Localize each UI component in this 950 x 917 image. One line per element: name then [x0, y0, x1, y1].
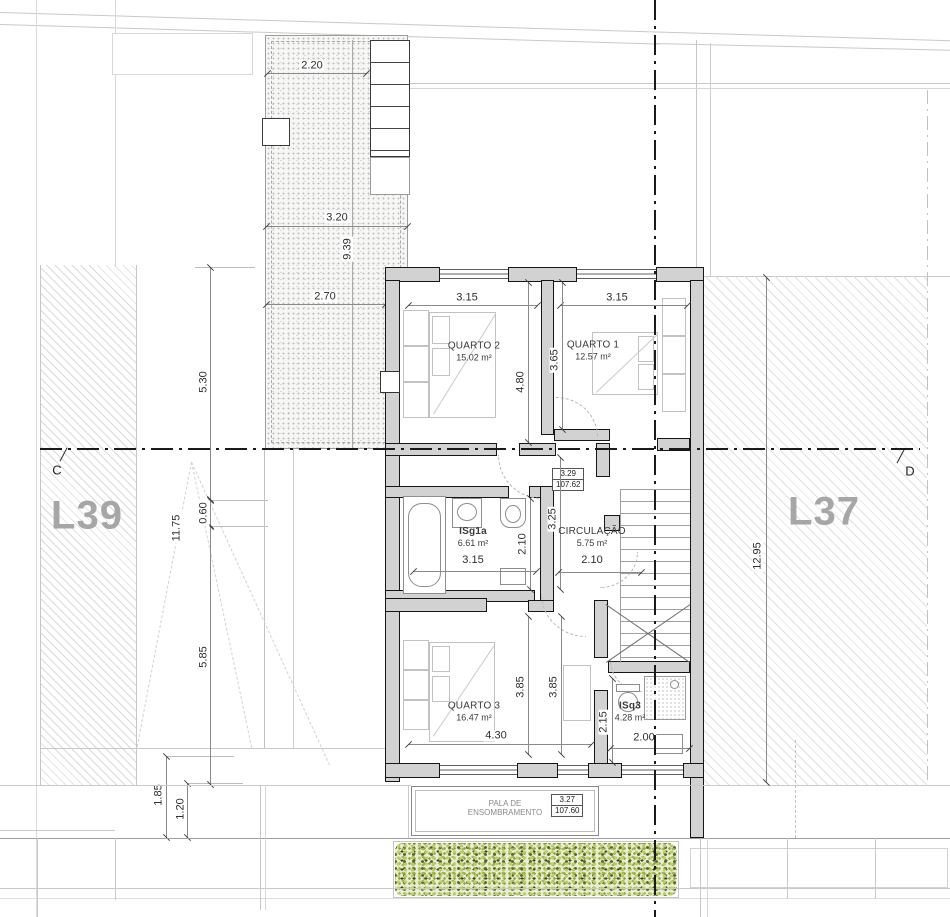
room-name: QUARTO 3: [448, 700, 500, 713]
room-name: QUARTO 1: [567, 339, 619, 352]
pillow: [432, 676, 450, 702]
wardrobe: [662, 374, 686, 412]
patio-box: [262, 118, 290, 146]
line: [0, 898, 950, 899]
line: [683, 763, 704, 778]
lot-label-l39: L39: [51, 494, 123, 539]
window: [622, 765, 683, 778]
shower-drain: [670, 680, 679, 689]
line: [594, 600, 608, 658]
wall-left: [385, 280, 400, 782]
dim-q3-d1: 3.85: [516, 674, 527, 699]
wardrobe: [403, 346, 429, 382]
wardrobe: [403, 670, 429, 700]
room-width: 2.10: [558, 553, 626, 567]
line: [115, 838, 116, 900]
level-marker-pala: 3.27 107.60: [551, 794, 583, 817]
line: [40, 748, 388, 749]
line: [264, 449, 265, 748]
room-name: ISq3: [615, 700, 646, 713]
line: [37, 838, 38, 917]
room-name: ISg1a: [458, 525, 489, 538]
room-label-circulacao: CIRCULAÇÃO 5.75 m² 2.10: [558, 525, 626, 567]
dim-line: [766, 277, 767, 783]
dim-line: [266, 226, 408, 227]
wardrobe: [403, 700, 429, 730]
line: [707, 838, 708, 917]
dim-isq3-w: 2.00: [631, 733, 656, 744]
wardrobe: [662, 336, 686, 374]
line: [210, 500, 268, 501]
line: [385, 443, 497, 456]
line: [700, 838, 701, 917]
line: [210, 500, 211, 526]
room-name: CIRCULAÇÃO: [558, 525, 626, 538]
level-marker-circ: 3.29 107.62: [552, 468, 584, 491]
room-width: 3.15: [458, 553, 489, 567]
wardrobe: [403, 382, 429, 418]
dim-left-diag: 11.75: [172, 513, 183, 544]
line: [210, 526, 211, 785]
dim-hall-d: 3.25: [548, 506, 559, 531]
dim-line: [610, 748, 690, 749]
line: [265, 785, 266, 910]
wall-right: [690, 280, 704, 838]
line: [599, 785, 950, 786]
line: [408, 785, 409, 838]
neighbor-footprint: [112, 33, 253, 75]
window: [577, 269, 656, 282]
toilet-tank: [616, 684, 640, 692]
room-area: 16.47 m²: [448, 713, 500, 725]
room-label-isq3: ISq3 4.28 m²: [615, 700, 646, 725]
sink: [655, 734, 683, 754]
window: [558, 765, 588, 778]
room-label-quarto1: QUARTO 1 12.57 m²: [567, 339, 619, 364]
line: [696, 40, 697, 277]
dim-line: [560, 305, 688, 306]
line: [260, 785, 261, 910]
section-line-cd: [40, 448, 920, 450]
line: [166, 756, 167, 838]
wardrobe: [403, 640, 429, 670]
dim-left-c: 5.85: [199, 644, 210, 669]
level-height: 3.29: [553, 469, 583, 480]
dim-line: [612, 678, 613, 763]
dim-line: [558, 572, 642, 573]
level-elevation: 107.60: [552, 806, 582, 816]
line: [210, 526, 268, 527]
room-label-quarto2: QUARTO 2 15.02 m²: [448, 340, 500, 365]
dim-bath-d: 2.10: [518, 531, 529, 556]
room-area: 5.75 m²: [558, 538, 626, 550]
exterior-stair-landing: [370, 157, 410, 195]
line: [210, 267, 211, 500]
dim-line: [413, 571, 537, 572]
line: [408, 88, 950, 89]
line: [385, 763, 440, 778]
line: [588, 763, 622, 778]
dim-left-e: 1.20: [176, 796, 187, 821]
dim-isq3-d: 2.15: [599, 709, 610, 734]
line: [540, 486, 554, 604]
wardrobe: [662, 298, 686, 336]
exterior-stair: [370, 40, 410, 157]
projection-line: [137, 462, 192, 747]
line: [787, 838, 788, 898]
room-area: 15.02 m²: [448, 353, 500, 365]
dim-q3-d2: 3.85: [549, 674, 560, 699]
section-marker-c: C: [52, 463, 61, 478]
room-area: 6.61 m²: [458, 538, 489, 550]
dim-patio-top: 2.20: [299, 61, 324, 72]
dim-q2-d: 4.80: [516, 369, 527, 394]
line: [710, 43, 711, 277]
wardrobe: [403, 310, 429, 346]
dim-q1-w: 3.15: [604, 293, 629, 304]
pavement-slab: [690, 848, 948, 888]
line: [187, 783, 243, 784]
line: [195, 267, 255, 268]
desk: [563, 665, 591, 721]
dim-line: [561, 616, 562, 755]
left-wall-window: [380, 371, 400, 393]
dim-q2-w: 3.15: [454, 293, 479, 304]
dim-line: [562, 282, 563, 430]
line: [385, 598, 487, 612]
line: [795, 740, 796, 838]
room-label-isg1a: ISg1a 6.61 m² 3.15: [458, 525, 489, 567]
dim-line: [528, 616, 529, 755]
line: [187, 783, 188, 838]
dim-patio-len: 9.39: [343, 236, 354, 261]
dim-patio-low: 2.70: [312, 292, 337, 303]
dim-line: [408, 744, 592, 745]
line: [0, 838, 950, 839]
room-name: QUARTO 2: [448, 340, 500, 353]
dim-line: [530, 498, 531, 590]
level-height: 3.27: [552, 795, 582, 806]
window: [440, 269, 508, 282]
pillow: [638, 364, 654, 390]
toilet-bowl: [505, 505, 521, 523]
room-label-quarto3: QUARTO 3 16.47 m²: [448, 700, 500, 725]
line: [0, 830, 115, 831]
dim-line: [267, 73, 367, 74]
dim-lot-right: 12.95: [753, 540, 764, 572]
line: [0, 888, 950, 889]
room-area: 12.57 m²: [567, 352, 619, 364]
dim-line: [408, 305, 538, 306]
dim-line: [266, 304, 386, 305]
line: [166, 756, 234, 757]
line: [408, 83, 950, 84]
line: [0, 785, 411, 786]
dim-line: [528, 282, 529, 443]
level-elevation: 107.62: [553, 480, 583, 490]
sink-basin: [457, 503, 477, 521]
dim-left-a: 5.30: [199, 369, 210, 394]
floor-plan-drawing: L39 L37 2.20 3.20 9.39 2.70 5.30 0.60: [0, 0, 950, 917]
room-area: 4.28 m²: [615, 713, 646, 725]
bathtub-inner: [408, 503, 441, 587]
window: [440, 765, 517, 778]
lot-label-l37: L37: [788, 490, 860, 535]
projection-line: [191, 462, 330, 765]
boundary-dashdot-line: [927, 90, 928, 785]
line: [875, 838, 876, 898]
pala-label-1: PALA DE: [489, 800, 522, 808]
dim-left-b: 0.60: [199, 500, 210, 525]
dim-q3-w: 4.30: [483, 731, 508, 742]
pillow: [432, 646, 450, 672]
shower: [644, 676, 686, 720]
section-marker-d: D: [905, 464, 914, 479]
pala-label-2: ENSOMBRAMENTO: [468, 809, 543, 817]
line: [36, 0, 37, 917]
line: [293, 449, 294, 748]
axis-dashdot-line: [654, 0, 656, 917]
line: [655, 43, 950, 51]
line: [517, 763, 558, 778]
dim-patio-mid: 3.20: [324, 213, 349, 224]
dim-q1-d: 3.65: [550, 347, 561, 372]
dim-left-d: 1.85: [154, 782, 165, 807]
